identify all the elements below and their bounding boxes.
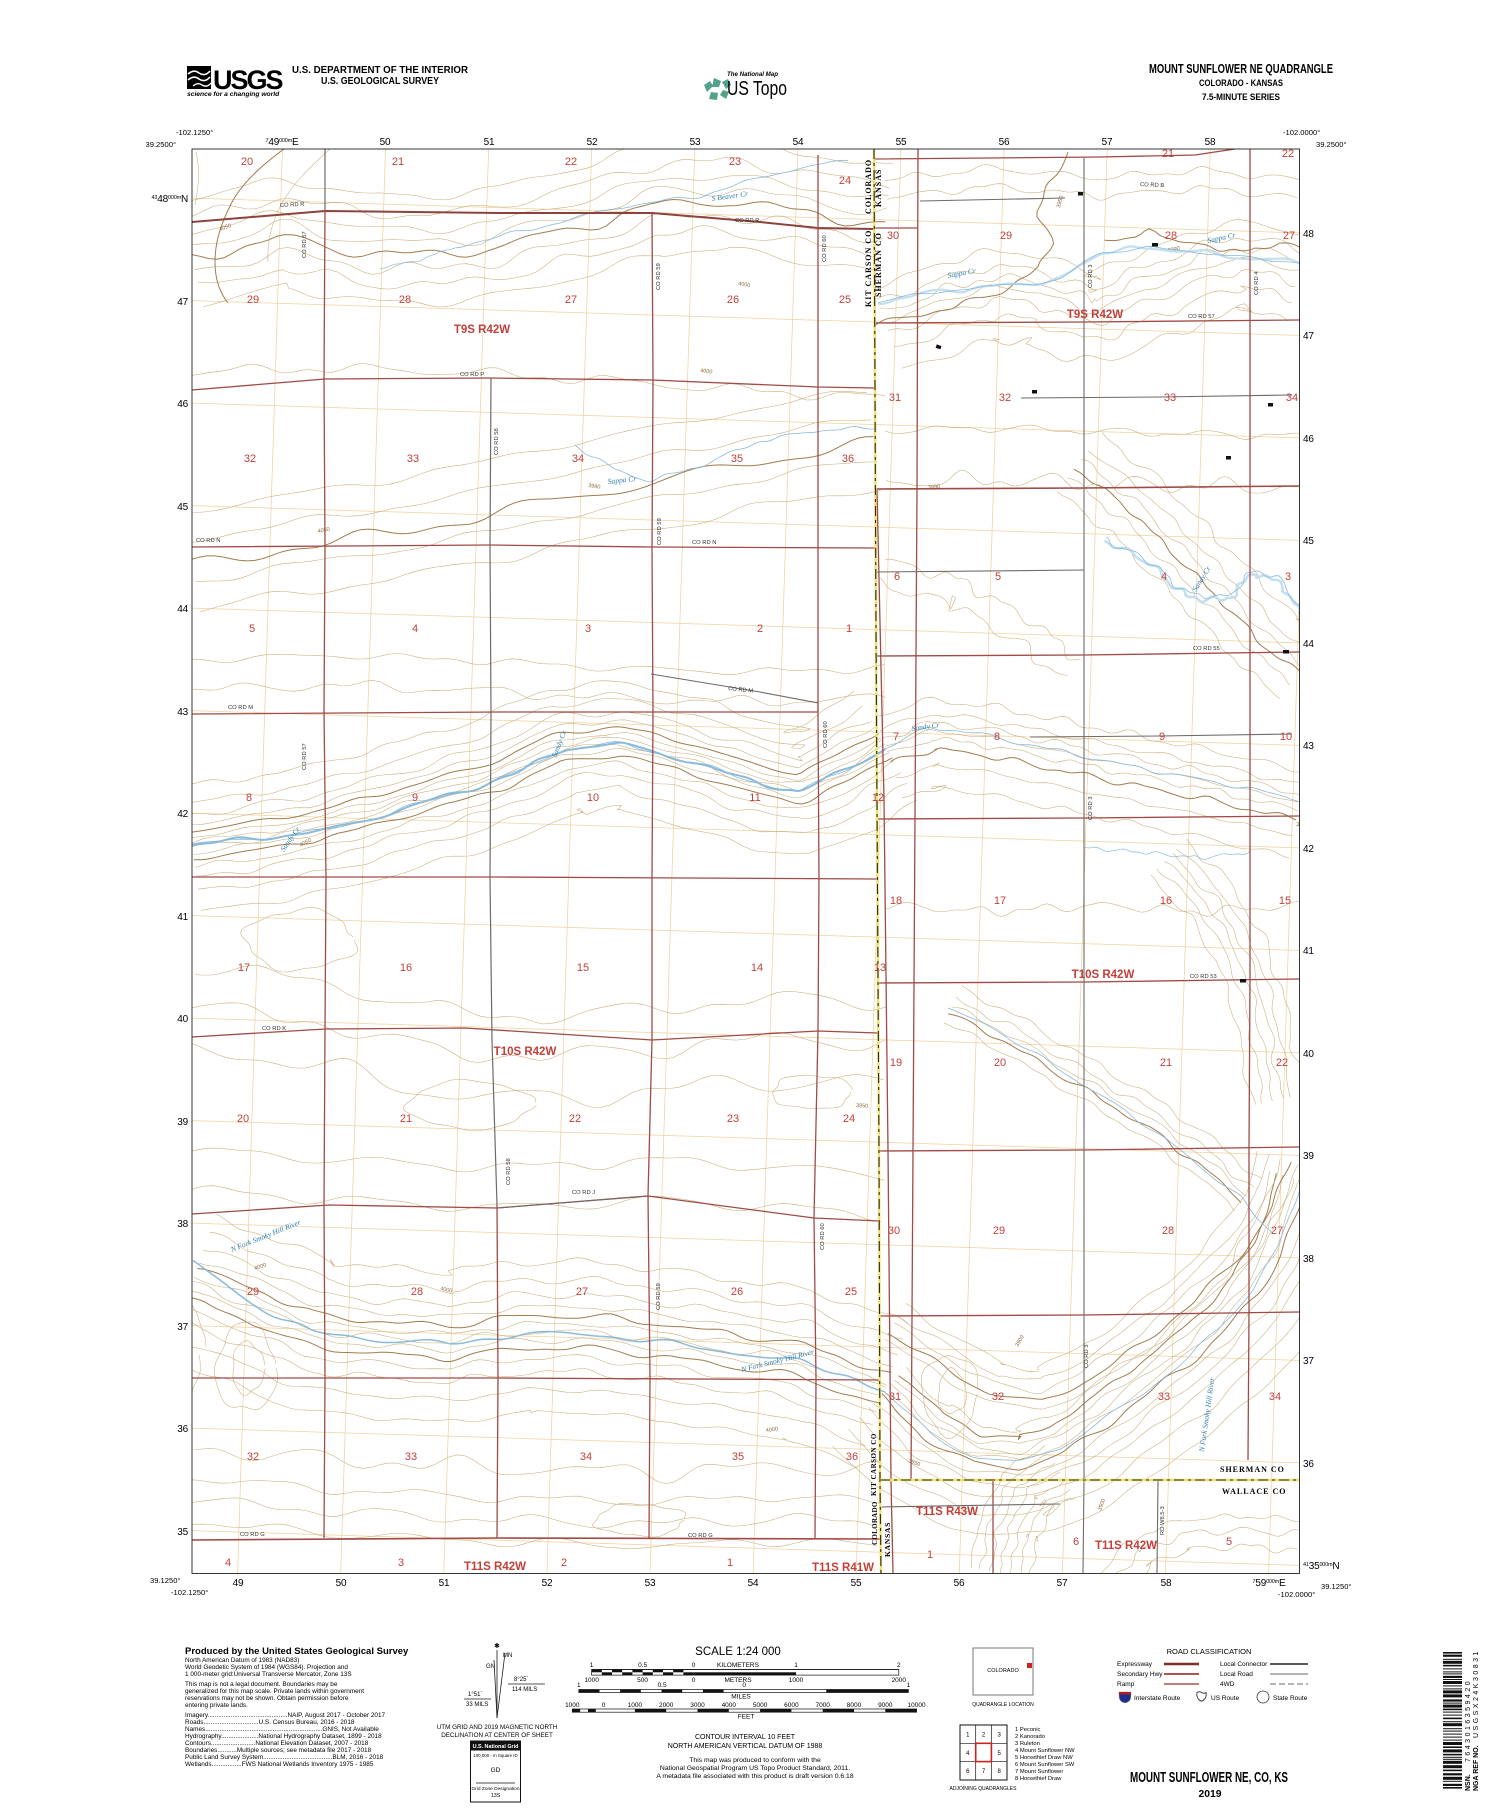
svg-text:32: 32 xyxy=(992,1391,1004,1403)
svg-text:COLORADO - KANSAS: COLORADO - KANSAS xyxy=(1199,78,1283,89)
svg-text:23: 23 xyxy=(729,156,741,168)
svg-text:MOUNT SUNFLOWER NE QUADRANGLE: MOUNT SUNFLOWER NE QUADRANGLE xyxy=(1149,62,1333,76)
svg-text:CO RD 57: CO RD 57 xyxy=(302,743,308,770)
svg-text:44: 44 xyxy=(1303,639,1314,650)
svg-text:1: 1 xyxy=(907,1682,911,1689)
svg-text:28: 28 xyxy=(1162,1225,1174,1237)
svg-text:20: 20 xyxy=(237,1113,249,1125)
svg-text:CO RD 58: CO RD 58 xyxy=(506,1158,512,1185)
svg-text:CO RD G: CO RD G xyxy=(688,1533,713,1539)
svg-text:0: 0 xyxy=(742,1682,746,1689)
svg-text:39: 39 xyxy=(177,1117,188,1128)
svg-text:49: 49 xyxy=(233,1578,244,1589)
svg-text:SHERMAN CO: SHERMAN CO xyxy=(1220,1465,1285,1474)
svg-text:54: 54 xyxy=(748,1578,759,1589)
svg-text:16: 16 xyxy=(1160,895,1172,907)
svg-text:1 Peconic: 1 Peconic xyxy=(1015,1727,1041,1733)
svg-text:7000: 7000 xyxy=(815,1702,830,1709)
svg-text:Boundaries...........Multiple: Boundaries...........Multiple sources; s… xyxy=(185,1747,372,1754)
svg-text:38: 38 xyxy=(177,1219,188,1230)
svg-text:42: 42 xyxy=(177,809,188,820)
svg-text:CO RD M: CO RD M xyxy=(228,705,253,711)
svg-text:The National Map: The National Map xyxy=(727,71,778,78)
svg-text:5 Horsethief Draw NW: 5 Horsethief Draw NW xyxy=(1015,1755,1073,1761)
svg-text:44: 44 xyxy=(177,604,188,615)
svg-text:KANSAS: KANSAS xyxy=(874,169,883,207)
svg-text:21: 21 xyxy=(400,1113,412,1125)
svg-text:GD: GD xyxy=(491,1767,501,1774)
svg-text:CO RD B: CO RD B xyxy=(1140,182,1165,189)
svg-text:55: 55 xyxy=(896,137,907,148)
svg-text:46: 46 xyxy=(177,399,188,410)
svg-text:National Geospatial Program US: National Geospatial Program US Topo Prod… xyxy=(660,1765,850,1772)
svg-text:33: 33 xyxy=(1158,1391,1170,1403)
svg-text:22: 22 xyxy=(1282,148,1294,160)
svg-text:9: 9 xyxy=(412,792,418,804)
svg-text:6 Mount Sunflower SW: 6 Mount Sunflower SW xyxy=(1015,1762,1075,1768)
svg-text:0.5: 0.5 xyxy=(658,1682,667,1689)
svg-text:14: 14 xyxy=(751,962,763,974)
svg-text:WALLACE CO: WALLACE CO xyxy=(1222,1487,1286,1496)
svg-text:US Topo: US Topo xyxy=(727,78,787,100)
svg-text:USGSX24K30831: USGSX24K30831 xyxy=(1473,1649,1480,1738)
svg-text:-102.1250°: -102.1250° xyxy=(171,1588,208,1597)
svg-text:3: 3 xyxy=(398,1557,404,1569)
svg-text:13: 13 xyxy=(874,962,886,974)
svg-text:7 Mount Sunflower: 7 Mount Sunflower xyxy=(1015,1769,1063,1775)
svg-text:FEET: FEET xyxy=(738,1714,755,1721)
svg-text:ROAD CLASSIFICATION: ROAD CLASSIFICATION xyxy=(1167,1647,1252,1656)
svg-text:5: 5 xyxy=(1226,1536,1232,1548)
svg-text:GN: GN xyxy=(486,1664,495,1670)
svg-text:This map is not a legal docume: This map is not a legal document. Bounda… xyxy=(185,1681,338,1688)
svg-text:CO RD K: CO RD K xyxy=(262,1026,286,1032)
svg-text:36: 36 xyxy=(842,453,854,465)
svg-text:36: 36 xyxy=(846,1451,858,1463)
svg-text:CO RD 60: CO RD 60 xyxy=(822,235,828,262)
svg-text:1: 1 xyxy=(927,1549,933,1561)
svg-text:2: 2 xyxy=(897,1662,901,1669)
svg-text:T11S R41W: T11S R41W xyxy=(812,1562,874,1574)
svg-text:2000: 2000 xyxy=(892,1677,907,1684)
svg-text:CO RD 53: CO RD 53 xyxy=(1190,974,1217,980)
svg-text:500: 500 xyxy=(637,1677,648,1684)
svg-text:41: 41 xyxy=(1303,946,1314,957)
svg-text:U.S. DEPARTMENT OF THE INTERIO: U.S. DEPARTMENT OF THE INTERIOR xyxy=(292,65,469,76)
svg-text:CO RD N: CO RD N xyxy=(196,538,220,544)
svg-text:28: 28 xyxy=(411,1286,423,1298)
svg-text:10000: 10000 xyxy=(908,1702,926,1709)
svg-text:2019: 2019 xyxy=(1199,1788,1222,1800)
svg-text:A metadata file associated wit: A metadata file associated with this pro… xyxy=(656,1773,853,1780)
svg-text:KILOMETERS: KILOMETERS xyxy=(717,1662,760,1669)
svg-text:15: 15 xyxy=(577,962,589,974)
svg-text:56: 56 xyxy=(954,1578,965,1589)
svg-text:4WD: 4WD xyxy=(1220,1681,1235,1688)
svg-text:50: 50 xyxy=(336,1578,347,1589)
svg-text:39: 39 xyxy=(1303,1151,1314,1162)
svg-text:CO RD R: CO RD R xyxy=(280,202,305,209)
svg-text:0: 0 xyxy=(692,1677,696,1684)
svg-text:8 Horsethief Draw: 8 Horsethief Draw xyxy=(1015,1776,1062,1782)
svg-text:-102.1250°: -102.1250° xyxy=(176,128,213,137)
svg-text:World Geodetic System of 1984: World Geodetic System of 1984 (WGS84). P… xyxy=(185,1664,348,1671)
svg-text:T11S R43W: T11S R43W xyxy=(916,1506,978,1518)
svg-text:US Route: US Route xyxy=(1211,1695,1240,1702)
svg-text:CO RD 57: CO RD 57 xyxy=(302,231,308,258)
svg-text:Imagery.......................: Imagery.................................… xyxy=(185,1712,386,1719)
svg-text:4: 4 xyxy=(412,623,418,635)
svg-text:North American Datum of 1983 (: North American Datum of 1983 (NAD83) xyxy=(185,1657,299,1664)
svg-text:CO RD G: CO RD G xyxy=(240,1532,265,1538)
svg-text:1: 1 xyxy=(846,623,852,635)
svg-text:5: 5 xyxy=(249,623,255,635)
svg-text:34: 34 xyxy=(1286,392,1298,404)
svg-text:CO RD J: CO RD J xyxy=(572,1190,595,1196)
svg-text:21: 21 xyxy=(392,156,404,168)
svg-text:35: 35 xyxy=(732,1451,744,1463)
svg-text:T9S R42W: T9S R42W xyxy=(1067,309,1123,321)
svg-text:CO RD 59: CO RD 59 xyxy=(656,1283,662,1310)
svg-text:26: 26 xyxy=(727,294,739,306)
svg-text:2: 2 xyxy=(561,1557,567,1569)
svg-text:6: 6 xyxy=(894,571,900,583)
svg-text:5: 5 xyxy=(995,571,1001,583)
svg-text:25: 25 xyxy=(839,294,851,306)
svg-text:CO RD N: CO RD N xyxy=(692,540,716,546)
svg-text:8: 8 xyxy=(994,731,1000,743)
svg-text:0: 0 xyxy=(692,1662,696,1669)
svg-text:21: 21 xyxy=(1160,1057,1172,1069)
svg-text:53: 53 xyxy=(645,1578,656,1589)
svg-text:10: 10 xyxy=(587,792,599,804)
svg-text:1000: 1000 xyxy=(628,1702,643,1709)
svg-text:17: 17 xyxy=(238,962,250,974)
svg-text:51: 51 xyxy=(484,137,495,148)
svg-text:100,000 - m Square ID: 100,000 - m Square ID xyxy=(473,1753,517,1758)
svg-text:27: 27 xyxy=(576,1286,588,1298)
svg-text:47: 47 xyxy=(177,297,188,308)
svg-text:1°51´: 1°51´ xyxy=(468,1692,482,1698)
svg-text:9000: 9000 xyxy=(878,1702,893,1709)
svg-text:T11S R42W: T11S R42W xyxy=(1095,1540,1157,1552)
svg-text:18: 18 xyxy=(890,895,902,907)
svg-text:COLORADO: COLORADO xyxy=(987,1668,1019,1674)
svg-text:41: 41 xyxy=(177,912,188,923)
svg-text:✱: ✱ xyxy=(494,1642,500,1650)
svg-text:Ramp: Ramp xyxy=(1117,1681,1135,1688)
svg-text:U.S. National Grid: U.S. National Grid xyxy=(473,1744,519,1750)
svg-text:13S: 13S xyxy=(491,1793,501,1799)
svg-text:28: 28 xyxy=(399,294,411,306)
svg-text:58: 58 xyxy=(1205,137,1216,148)
svg-text:1: 1 xyxy=(727,1557,733,1569)
svg-text:52: 52 xyxy=(587,137,598,148)
svg-text:25: 25 xyxy=(845,1286,857,1298)
svg-text:30: 30 xyxy=(887,230,899,242)
svg-text:QUADRANGLE LOCATION: QUADRANGLE LOCATION xyxy=(972,1702,1034,1708)
svg-text:Public Land Survey System.....: Public Land Survey System...............… xyxy=(185,1754,384,1761)
svg-text:UTM GRID AND 2019 MAGNETIC NOR: UTM GRID AND 2019 MAGNETIC NORTH xyxy=(437,1724,558,1731)
svg-text:KIT CARSON CO: KIT CARSON CO xyxy=(864,230,873,307)
svg-text:CO RD 57: CO RD 57 xyxy=(1188,314,1215,320)
svg-text:KIT CARSON CO: KIT CARSON CO xyxy=(870,1433,878,1496)
svg-text:31: 31 xyxy=(889,392,901,404)
svg-text:43: 43 xyxy=(1303,741,1314,752)
svg-text:CONTOUR INTERVAL 10 FEET: CONTOUR INTERVAL 10 FEET xyxy=(695,1734,796,1741)
svg-text:9: 9 xyxy=(1159,731,1165,743)
svg-text:33 MILS: 33 MILS xyxy=(466,1702,488,1708)
svg-text:6000: 6000 xyxy=(784,1702,799,1709)
svg-text:52: 52 xyxy=(542,1578,553,1589)
svg-text:58: 58 xyxy=(1161,1578,1172,1589)
svg-text:40: 40 xyxy=(177,1014,188,1025)
svg-text:1000: 1000 xyxy=(565,1702,580,1709)
svg-text:7.5-MINUTE SERIES: 7.5-MINUTE SERIES xyxy=(1202,92,1280,103)
svg-text:CO RD 4: CO RD 4 xyxy=(1254,271,1260,295)
svg-text:COLORADO: COLORADO xyxy=(871,1501,879,1545)
svg-text:27: 27 xyxy=(565,294,577,306)
svg-text:34: 34 xyxy=(572,453,584,465)
svg-text:27: 27 xyxy=(1271,1225,1283,1237)
svg-text:CO RD 60: CO RD 60 xyxy=(820,1223,826,1250)
svg-text:7643016359420: 7643016359420 xyxy=(1465,1679,1472,1762)
svg-text:This map was produced to confo: This map was produced to conform with th… xyxy=(689,1757,821,1764)
svg-text:-102.0000°: -102.0000° xyxy=(1283,128,1320,137)
svg-text:2: 2 xyxy=(757,623,763,635)
svg-text:26: 26 xyxy=(731,1286,743,1298)
svg-text:46: 46 xyxy=(1303,434,1314,445)
svg-text:29: 29 xyxy=(247,294,259,306)
svg-text:CO RD 59: CO RD 59 xyxy=(656,263,662,290)
svg-text:42: 42 xyxy=(1303,844,1314,855)
svg-text:reservations may not be shown.: reservations may not be shown. Obtain pe… xyxy=(185,1695,349,1702)
svg-text:1: 1 xyxy=(794,1662,798,1669)
svg-text:Contours......................: Contours.........................Nationa… xyxy=(185,1740,369,1747)
svg-text:43: 43 xyxy=(177,707,188,718)
svg-text:20: 20 xyxy=(241,156,253,168)
svg-text:17: 17 xyxy=(994,895,1006,907)
svg-text:0: 0 xyxy=(602,1702,606,1709)
svg-text:Produced by the United States: Produced by the United States Geological… xyxy=(185,1646,409,1657)
svg-text:33: 33 xyxy=(1164,392,1176,404)
svg-text:CO RD 58: CO RD 58 xyxy=(494,428,500,455)
svg-text:KANSAS: KANSAS xyxy=(883,1522,892,1557)
svg-text:generalized for this map scale: generalized for this map scale. Private … xyxy=(185,1688,364,1695)
svg-text:19: 19 xyxy=(890,1057,902,1069)
svg-text:34: 34 xyxy=(580,1451,592,1463)
svg-text:11: 11 xyxy=(749,792,760,804)
svg-text:39.2500°: 39.2500° xyxy=(1316,140,1347,149)
svg-text:29: 29 xyxy=(1000,230,1012,242)
svg-text:Expressway: Expressway xyxy=(1117,1661,1153,1668)
svg-text:SCALE 1:24 000: SCALE 1:24 000 xyxy=(695,1646,781,1658)
svg-text:21: 21 xyxy=(1162,148,1174,160)
svg-text:MN: MN xyxy=(503,1653,512,1659)
svg-text:Local Road: Local Road xyxy=(1220,1671,1253,1678)
svg-text:NORTH AMERICAN VERTICAL DATUM: NORTH AMERICAN VERTICAL DATUM OF 1988 xyxy=(668,1743,823,1750)
svg-text:Roads.........................: Roads...............................U.S.… xyxy=(185,1719,355,1726)
svg-text:3: 3 xyxy=(1285,571,1291,583)
svg-text:DECLINATION AT CENTER OF SHEET: DECLINATION AT CENTER OF SHEET xyxy=(441,1732,553,1739)
svg-text:32: 32 xyxy=(247,1451,259,1463)
svg-text:2000: 2000 xyxy=(659,1702,674,1709)
svg-text:34: 34 xyxy=(1269,1391,1281,1403)
svg-text:Interstate Route: Interstate Route xyxy=(1134,1695,1181,1702)
svg-text:T10S R42W: T10S R42W xyxy=(1072,969,1135,981)
svg-text:3 Ruleton: 3 Ruleton xyxy=(1015,1741,1040,1747)
svg-text:15: 15 xyxy=(1279,895,1291,907)
svg-text:COLORADO: COLORADO xyxy=(864,159,873,214)
svg-text:State Route: State Route xyxy=(1273,1695,1308,1702)
svg-text:22: 22 xyxy=(569,1113,581,1125)
svg-text:CO RD 60: CO RD 60 xyxy=(823,721,829,748)
svg-text:33: 33 xyxy=(405,1451,417,1463)
svg-text:MILES: MILES xyxy=(731,1694,751,1701)
svg-text:4 Mount Sunflower NW: 4 Mount Sunflower NW xyxy=(1015,1748,1075,1754)
svg-text:32: 32 xyxy=(999,392,1011,404)
svg-text:1 000-meter grid:Universal Tra: 1 000-meter grid:Universal Transverse Me… xyxy=(185,1671,352,1678)
svg-text:1000: 1000 xyxy=(584,1677,599,1684)
svg-text:Names.........................: Names...................................… xyxy=(185,1726,379,1733)
svg-text:45: 45 xyxy=(177,502,188,513)
svg-text:NGA REF NO.: NGA REF NO. xyxy=(1473,1745,1480,1791)
svg-text:39.2500°: 39.2500° xyxy=(146,140,177,149)
svg-text:28: 28 xyxy=(1165,230,1177,242)
svg-text:47: 47 xyxy=(1303,331,1314,342)
svg-text:METERS: METERS xyxy=(724,1677,752,1684)
svg-text:2 Kanorado: 2 Kanorado xyxy=(1015,1734,1045,1740)
svg-text:U.S. GEOLOGICAL SURVEY: U.S. GEOLOGICAL SURVEY xyxy=(321,76,439,87)
svg-text:3000: 3000 xyxy=(690,1702,705,1709)
svg-text:Hydrography...................: Hydrography.....................National… xyxy=(185,1733,382,1740)
svg-text:8000: 8000 xyxy=(847,1702,862,1709)
svg-text:CO RD 3: CO RD 3 xyxy=(1084,1344,1090,1368)
svg-text:29: 29 xyxy=(247,1286,259,1298)
svg-text:0.5: 0.5 xyxy=(638,1662,647,1669)
svg-text:CO RD 3: CO RD 3 xyxy=(1088,796,1094,820)
svg-text:RD W8.5-3: RD W8.5-3 xyxy=(1160,1506,1166,1535)
svg-text:29: 29 xyxy=(993,1225,1005,1237)
svg-text:-102.0000°: -102.0000° xyxy=(1278,1590,1315,1599)
svg-text:50: 50 xyxy=(380,137,391,148)
svg-text:MOUNT SUNFLOWER NE, CO, KS: MOUNT SUNFLOWER NE, CO, KS xyxy=(1130,1770,1288,1786)
svg-text:32: 32 xyxy=(244,453,256,465)
svg-text:22: 22 xyxy=(565,156,577,168)
svg-text:science for a changing world: science for a changing world xyxy=(187,91,280,98)
svg-text:Secondary Hwy: Secondary Hwy xyxy=(1117,1671,1163,1678)
svg-text:20: 20 xyxy=(994,1057,1006,1069)
svg-text:39.1250°: 39.1250° xyxy=(1321,1582,1352,1591)
svg-text:16: 16 xyxy=(400,962,412,974)
svg-text:1: 1 xyxy=(590,1662,594,1669)
svg-text:55: 55 xyxy=(851,1578,862,1589)
svg-text:NSN.: NSN. xyxy=(1465,1774,1472,1791)
svg-text:24: 24 xyxy=(843,1113,855,1125)
svg-text:57: 57 xyxy=(1057,1578,1068,1589)
svg-text:4: 4 xyxy=(225,1557,231,1569)
svg-text:56: 56 xyxy=(999,137,1010,148)
svg-text:CO RD 55: CO RD 55 xyxy=(1193,646,1220,652)
svg-text:SHERMAN CO: SHERMAN CO xyxy=(874,232,883,297)
svg-text:45: 45 xyxy=(1303,536,1314,547)
svg-text:48: 48 xyxy=(1303,229,1314,240)
svg-text:T9S R42W: T9S R42W xyxy=(454,324,510,336)
svg-text:40: 40 xyxy=(1303,1049,1314,1060)
svg-text:23: 23 xyxy=(727,1113,739,1125)
svg-text:CO RD P: CO RD P xyxy=(460,372,484,378)
svg-text:Grid Zone Designation: Grid Zone Designation xyxy=(472,1786,520,1792)
svg-text:22: 22 xyxy=(1276,1057,1288,1069)
svg-text:CO RD 59: CO RD 59 xyxy=(657,518,663,545)
svg-text:4000: 4000 xyxy=(722,1702,737,1709)
svg-text:54: 54 xyxy=(793,137,804,148)
svg-text:36: 36 xyxy=(177,1424,188,1435)
svg-text:CO RD R: CO RD R xyxy=(735,218,759,224)
svg-text:51: 51 xyxy=(439,1578,450,1589)
svg-text:10: 10 xyxy=(1280,731,1292,743)
svg-text:27: 27 xyxy=(1283,230,1295,242)
svg-text:30: 30 xyxy=(888,1225,900,1237)
svg-text:1: 1 xyxy=(577,1682,581,1689)
svg-text:3950: 3950 xyxy=(856,1103,869,1110)
svg-text:35: 35 xyxy=(731,453,743,465)
svg-text:38: 38 xyxy=(1303,1254,1314,1265)
svg-text:24: 24 xyxy=(839,175,851,187)
svg-text:33: 33 xyxy=(407,453,419,465)
svg-text:31: 31 xyxy=(889,1391,901,1403)
svg-text:3990: 3990 xyxy=(928,484,941,491)
svg-text:3: 3 xyxy=(585,623,591,635)
svg-text:ADJOINING QUADRANGLES: ADJOINING QUADRANGLES xyxy=(950,1786,1018,1792)
svg-text:57: 57 xyxy=(1102,137,1113,148)
svg-text:12: 12 xyxy=(872,792,884,804)
svg-text:Wetlands.................FWS: Wetlands.................FWS National We… xyxy=(185,1761,374,1768)
svg-text:36: 36 xyxy=(1303,1459,1314,1470)
svg-text:8: 8 xyxy=(246,792,252,804)
svg-text:7: 7 xyxy=(893,731,899,743)
svg-text:39.1250°: 39.1250° xyxy=(150,1576,181,1585)
svg-text:6: 6 xyxy=(1073,1536,1079,1548)
svg-text:4: 4 xyxy=(1161,571,1167,583)
svg-text:1000: 1000 xyxy=(789,1677,804,1684)
svg-text:114 MILS: 114 MILS xyxy=(512,1687,537,1693)
svg-text:37: 37 xyxy=(177,1322,188,1333)
svg-text:T10S R42W: T10S R42W xyxy=(494,1046,557,1058)
svg-text:5000: 5000 xyxy=(753,1702,768,1709)
svg-text:Local Connector: Local Connector xyxy=(1220,1661,1268,1668)
svg-text:37: 37 xyxy=(1303,1356,1314,1367)
svg-text:53: 53 xyxy=(690,137,701,148)
svg-text:T11S R42W: T11S R42W xyxy=(464,1561,526,1573)
svg-text:35: 35 xyxy=(177,1527,188,1538)
svg-text:8°25´: 8°25´ xyxy=(514,1677,528,1683)
svg-text:entering private lands.: entering private lands. xyxy=(185,1702,248,1709)
svg-text:CO RD 3: CO RD 3 xyxy=(1088,264,1094,288)
